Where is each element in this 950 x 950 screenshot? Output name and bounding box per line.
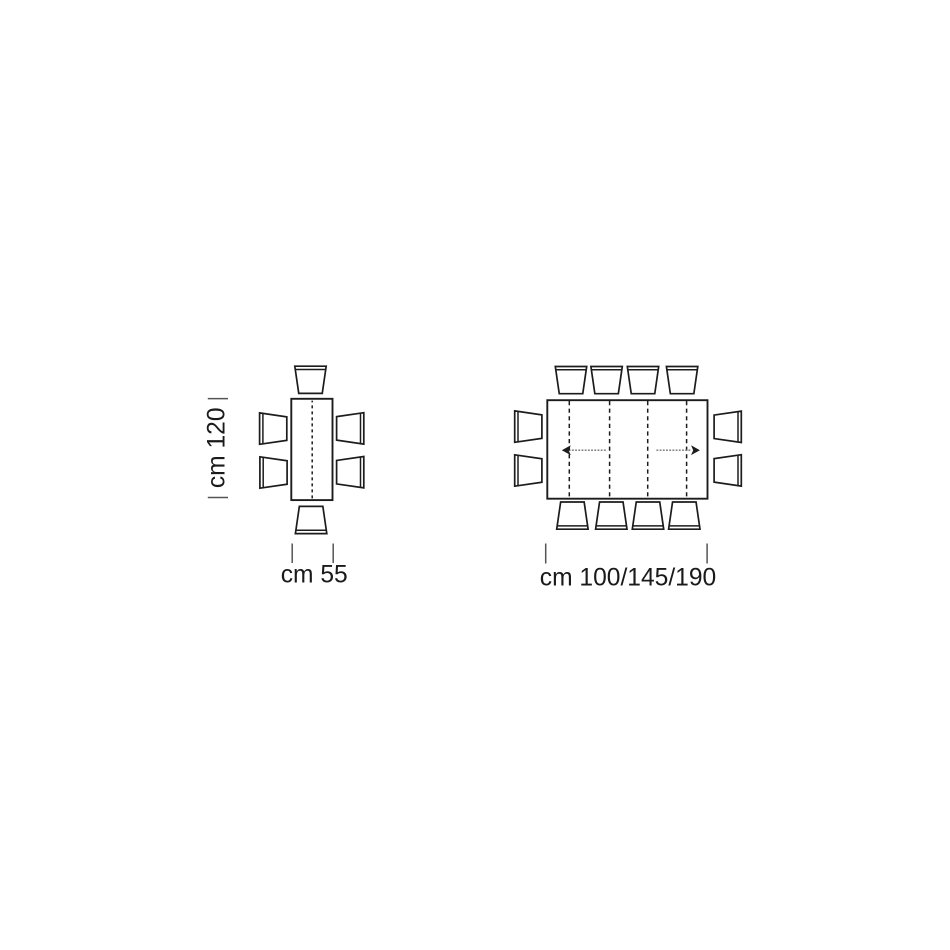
- svg-text:cm 55: cm 55: [281, 562, 348, 589]
- svg-text:cm 100/145/190: cm 100/145/190: [540, 565, 716, 592]
- svg-text:cm 120: cm 120: [204, 407, 231, 488]
